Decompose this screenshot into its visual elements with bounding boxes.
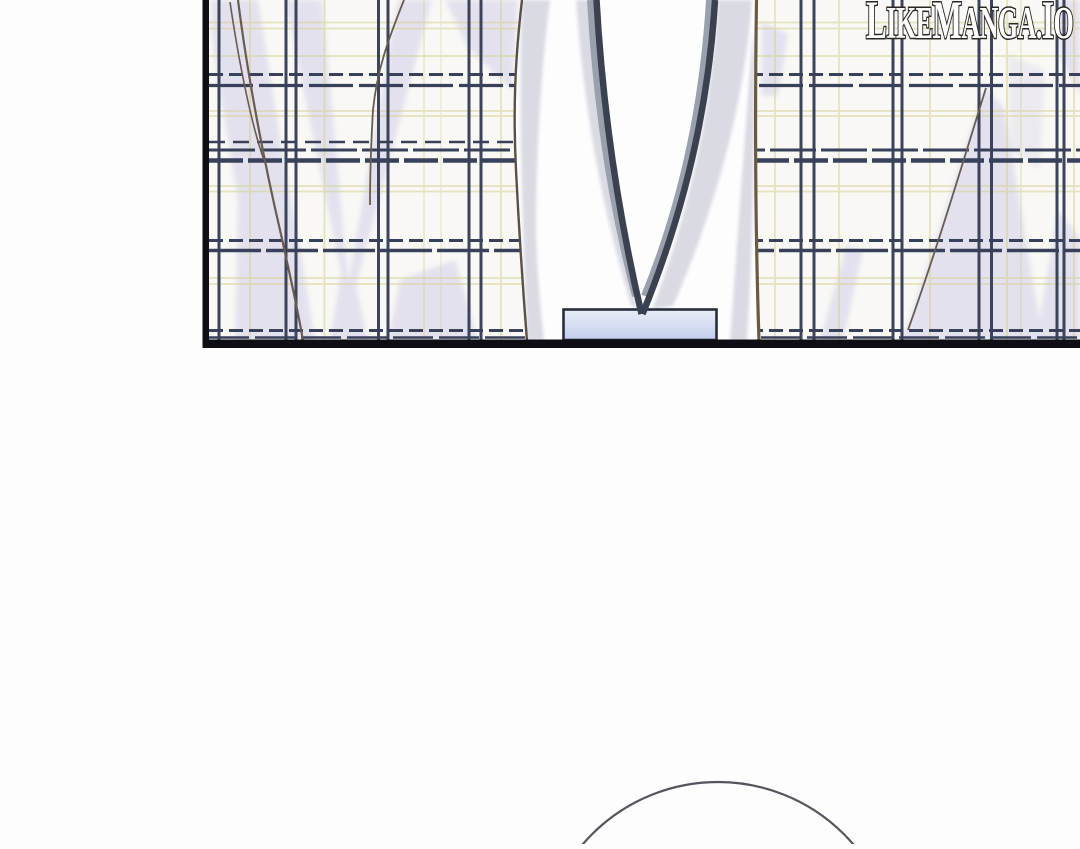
svg-text:LIKEMANGA.IO: LIKEMANGA.IO: [866, 0, 1073, 50]
